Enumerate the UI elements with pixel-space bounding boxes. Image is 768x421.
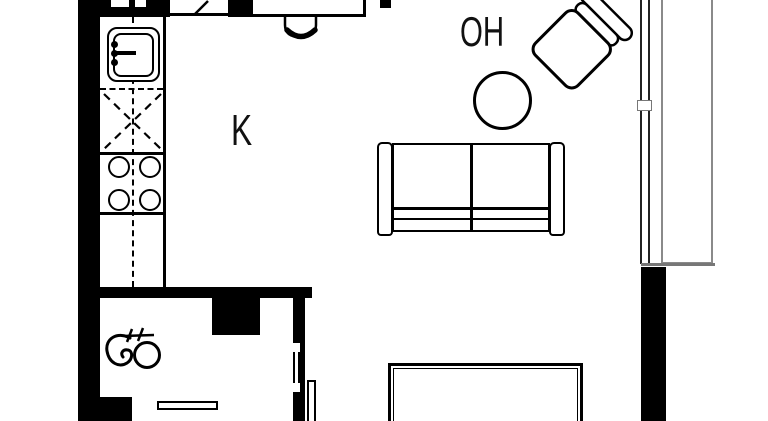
door-jamb — [284, 383, 300, 392]
window-mullion — [637, 100, 652, 111]
appliance-reserve-icon — [100, 90, 166, 154]
window-line — [640, 0, 642, 264]
sofa-armrest-right — [549, 142, 565, 236]
stove-burner-icon — [139, 189, 161, 211]
armchair-icon — [516, 0, 636, 105]
bath-counter-bar — [157, 401, 218, 410]
sofa-seat — [392, 143, 550, 232]
balcony-glazing — [661, 0, 713, 264]
top-wall-notch — [135, 0, 146, 7]
door-opening-strip — [295, 351, 298, 384]
sofa-armrest-left — [377, 142, 393, 236]
faucet-icon — [111, 41, 118, 48]
low-table-inner-line — [393, 368, 578, 421]
floor-plan: K OH — [0, 0, 768, 421]
top-wall-notch — [111, 0, 129, 7]
wall-bath-bottom-stub — [93, 397, 132, 421]
door-opening-strip — [288, 351, 291, 384]
wall-top-segment — [228, 0, 253, 17]
drain-valve-icon — [100, 320, 170, 375]
faucet-spout — [114, 51, 136, 55]
balcony-bottom-line — [641, 263, 715, 266]
duct-shaft — [212, 289, 260, 335]
sink-basin — [113, 33, 154, 77]
wall-kitchen-bath-divider — [78, 287, 312, 298]
stove-burner-icon — [108, 189, 130, 211]
wall-right-bottom — [641, 267, 666, 421]
room-label-kitchen: K — [231, 109, 252, 153]
window-diagonal-icon — [170, 0, 228, 16]
door-leaf — [307, 380, 316, 421]
stove-burner-icon — [108, 156, 130, 178]
faucet-icon — [111, 59, 118, 66]
wall-left — [78, 0, 100, 421]
wall-top-stub — [380, 0, 391, 8]
round-table — [473, 71, 532, 130]
window-line — [648, 0, 650, 264]
sofa-back-line — [394, 218, 548, 220]
low-table — [388, 363, 583, 421]
dining-chair-icon — [279, 15, 323, 45]
sofa-back-line — [394, 207, 548, 210]
room-label-living-room: OH — [460, 11, 504, 53]
stove-burner-icon — [139, 156, 161, 178]
